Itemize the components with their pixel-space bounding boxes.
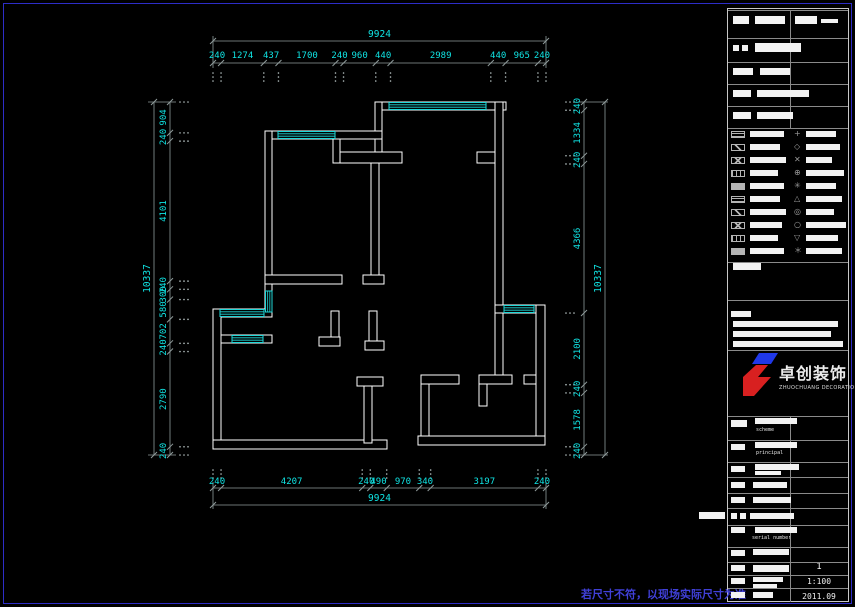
redacted-text-bar (806, 144, 840, 150)
wall-segment (421, 375, 459, 384)
dimension-label: 9924 (368, 493, 391, 504)
dimension-label: 10337 (593, 264, 604, 293)
dimension-label: 965 (514, 51, 530, 61)
titleblock-grid-line (728, 10, 848, 11)
legend-symbol-icon (731, 196, 745, 203)
redacted-text-bar (731, 592, 745, 598)
redacted-text-bar (795, 16, 817, 24)
dimension-label: 240 (573, 98, 583, 114)
titleblock-grid-line (728, 508, 848, 509)
redacted-text-bar (806, 183, 836, 189)
dimension-label: 440 (490, 51, 506, 61)
redacted-text-bar (733, 321, 838, 327)
redacted-text-bar (750, 144, 780, 150)
window (504, 306, 534, 313)
dimension-label: 1578 (573, 409, 583, 431)
redacted-text-bar (733, 341, 843, 347)
window (389, 103, 486, 110)
redacted-text-bar (742, 45, 748, 51)
dimension-label: 702 (159, 323, 169, 339)
legend-glyph-icon: △ (794, 195, 800, 203)
dimension-label: 440 (375, 51, 391, 61)
legend-symbol-icon (731, 209, 745, 216)
redacted-text-bar (806, 131, 836, 137)
window (232, 336, 263, 343)
legend-symbol-icon (731, 222, 745, 229)
wall-segment (524, 375, 536, 384)
dimension-label: 240 (534, 477, 550, 487)
redacted-text-bar (731, 497, 745, 503)
titleblock-grid-line (728, 493, 848, 494)
dimension-label: 240 (159, 339, 169, 355)
wall-segment (265, 131, 272, 317)
redacted-text-bar (731, 311, 751, 317)
redacted-text-bar (753, 592, 773, 598)
legend-glyph-icon: ✕ (794, 156, 801, 164)
wall-segment (479, 375, 512, 384)
legend-glyph-icon: ○ (794, 221, 801, 229)
redacted-text-bar (753, 577, 783, 582)
redacted-text-bar (750, 183, 784, 189)
redacted-text-bar (757, 112, 793, 119)
company-name-en: ZHUOCHUANG DECORATION (779, 385, 855, 391)
redacted-text-bar (755, 418, 797, 424)
company-logo-icon (739, 350, 781, 400)
wall-segment (477, 152, 495, 163)
redacted-text-bar (731, 513, 737, 519)
wall-segment (418, 436, 545, 445)
dimension-label: 240 (159, 129, 169, 145)
legend-symbol-icon (731, 144, 745, 151)
disclaimer-text: 若尺寸不符，以现场实际尺寸为准 (581, 586, 746, 602)
legend-glyph-icon: + (794, 130, 801, 138)
titleblock-grid-line (728, 62, 848, 63)
redacted-text-bar (755, 43, 801, 52)
dimension-label: 300 (159, 286, 169, 302)
redacted-text-bar (733, 45, 739, 51)
redacted-text-bar (733, 112, 751, 119)
redacted-text-bar (806, 248, 842, 254)
redacted-text-bar (731, 578, 745, 584)
titleblock-grid-line (728, 416, 848, 417)
dimension-label: 240 (534, 51, 550, 61)
window (278, 132, 335, 139)
dimension-label: 3197 (473, 477, 495, 487)
date-value: 2011.09 (790, 592, 848, 601)
dimension-label: 2100 (573, 338, 583, 360)
wall-segment (421, 375, 429, 445)
dimension-label: 1334 (573, 122, 583, 144)
window (266, 291, 273, 312)
legend-glyph-icon: ✳ (794, 182, 801, 190)
redacted-text-bar (731, 482, 745, 488)
legend-symbol-icon (731, 170, 745, 177)
titleblock-grid-line (728, 128, 848, 129)
titleblock-grid-line (728, 84, 848, 85)
wall-segment (213, 309, 221, 448)
wall-segment (479, 384, 487, 406)
redacted-text-bar (750, 196, 780, 202)
wall-segment (213, 440, 387, 449)
redacted-text-bar (753, 584, 777, 588)
titleblock-grid-line (728, 38, 848, 39)
redacted-text-bar (750, 209, 786, 215)
redacted-text-bar (760, 68, 790, 75)
redacted-text-bar (733, 331, 831, 337)
titleblock-grid-line (728, 525, 848, 526)
dimension-label: 904 (159, 109, 169, 125)
dimension-label: 9924 (368, 29, 391, 40)
serial-number-label: serial number (752, 535, 791, 541)
wall-segment (371, 163, 379, 281)
titleblock-grid-line (728, 477, 848, 478)
scale-value: 1:100 (790, 577, 848, 586)
redacted-text-bar (753, 497, 791, 503)
dimension-label: 4207 (281, 477, 303, 487)
scheme-label: scheme (756, 427, 774, 433)
redacted-text-bar (753, 549, 789, 555)
dimension-label: 240 (209, 51, 225, 61)
redacted-text-bar (806, 222, 846, 228)
company-name-cn: 卓创装饰 (779, 360, 847, 384)
legend-glyph-icon: ▽ (794, 234, 800, 242)
redacted-text-bar (750, 157, 786, 163)
dimension-label: 4366 (573, 228, 583, 250)
dimension-label: 240 (573, 381, 583, 397)
legend-glyph-icon: ＊ (794, 247, 802, 255)
dimension-label: 960 (352, 51, 368, 61)
legend-glyph-icon: ◎ (794, 208, 801, 216)
redacted-text-bar (731, 550, 745, 556)
window (220, 310, 264, 317)
titleblock-grid-line (728, 300, 848, 301)
dimension-label: 240 (331, 51, 347, 61)
principal-label: principal (756, 450, 783, 456)
legend-glyph-icon: ◇ (794, 143, 800, 151)
wall-segment (363, 275, 384, 284)
wall-segment (536, 305, 545, 441)
dimension-label: 437 (263, 51, 279, 61)
redacted-text-bar (731, 565, 745, 571)
walls (213, 102, 545, 449)
wall-segment (333, 152, 402, 163)
redacted-text-bar (750, 513, 794, 519)
redacted-text-bar (731, 466, 745, 472)
wall-segment (364, 377, 372, 443)
redacted-text-bar (753, 482, 787, 488)
legend-symbol-icon (731, 183, 745, 190)
dimension-label: 240 (573, 152, 583, 168)
redacted-text-bar (750, 131, 784, 137)
titleblock-grid-line (728, 106, 848, 107)
titleblock-grid-line (728, 575, 848, 576)
dimension-label: 10337 (142, 264, 153, 293)
dimension-label: 4101 (159, 200, 169, 222)
titleblock-grid-line (728, 440, 848, 441)
sheet-number-value: 1 (790, 562, 848, 572)
redacted-text-bar (753, 565, 789, 572)
dimension-label: 1700 (296, 51, 318, 61)
legend-symbol-icon (731, 131, 745, 138)
legend-symbol-icon (731, 235, 745, 242)
redacted-text-bar (755, 471, 781, 475)
redacted-text-bar (699, 512, 725, 519)
redacted-text-bar (755, 16, 785, 24)
titleblock-grid-line (728, 462, 848, 463)
redacted-text-bar (733, 68, 753, 75)
legend-glyph-icon: ⊕ (794, 169, 801, 177)
wall-segment (495, 102, 503, 377)
redacted-text-bar (733, 90, 751, 97)
titleblock-grid-line (790, 10, 791, 128)
redacted-text-bar (755, 442, 797, 448)
dimension-label: 240 (159, 443, 169, 459)
redacted-text-bar (733, 16, 749, 24)
legend-symbol-icon (731, 248, 745, 255)
dimension-label: 970 (395, 477, 411, 487)
redacted-text-bar (750, 222, 782, 228)
redacted-text-bar (750, 235, 778, 241)
dimension-label: 340 (417, 477, 433, 487)
titleblock-grid-line (728, 588, 848, 589)
redacted-text-bar (806, 170, 844, 176)
dimension-label: 1274 (232, 51, 254, 61)
redacted-text-bar (740, 513, 746, 519)
redacted-text-bar (733, 263, 761, 270)
redacted-text-bar (806, 209, 834, 215)
cad-sheet: 2401274437170024096044029894409652409924… (0, 0, 855, 607)
redacted-text-bar (755, 527, 797, 533)
redacted-text-bar (757, 90, 809, 97)
wall-segment (365, 341, 384, 350)
dimension-label: 240 (573, 443, 583, 459)
legend-symbol-icon (731, 157, 745, 164)
dimension-label: 2989 (430, 51, 452, 61)
redacted-text-bar (755, 464, 799, 470)
redacted-text-bar (821, 19, 838, 23)
wall-segment (265, 275, 342, 284)
dimension-label: 2790 (159, 388, 169, 410)
redacted-text-bar (750, 170, 778, 176)
redacted-text-bar (806, 235, 838, 241)
wall-segment (319, 337, 340, 346)
wall-segment (357, 377, 383, 386)
redacted-text-bar (731, 527, 745, 533)
dimension-label: 490 (370, 477, 386, 487)
redacted-text-bar (806, 196, 842, 202)
titleblock-grid-line (728, 547, 848, 548)
redacted-text-bar (750, 248, 784, 254)
redacted-text-bar (806, 157, 832, 163)
dimension-label: 240 (209, 477, 225, 487)
redacted-text-bar (731, 444, 745, 450)
titleblock-grid-line (728, 562, 848, 563)
titleblock-grid-line (728, 350, 848, 351)
dimension-label: 580 (159, 301, 169, 317)
redacted-text-bar (731, 420, 747, 427)
